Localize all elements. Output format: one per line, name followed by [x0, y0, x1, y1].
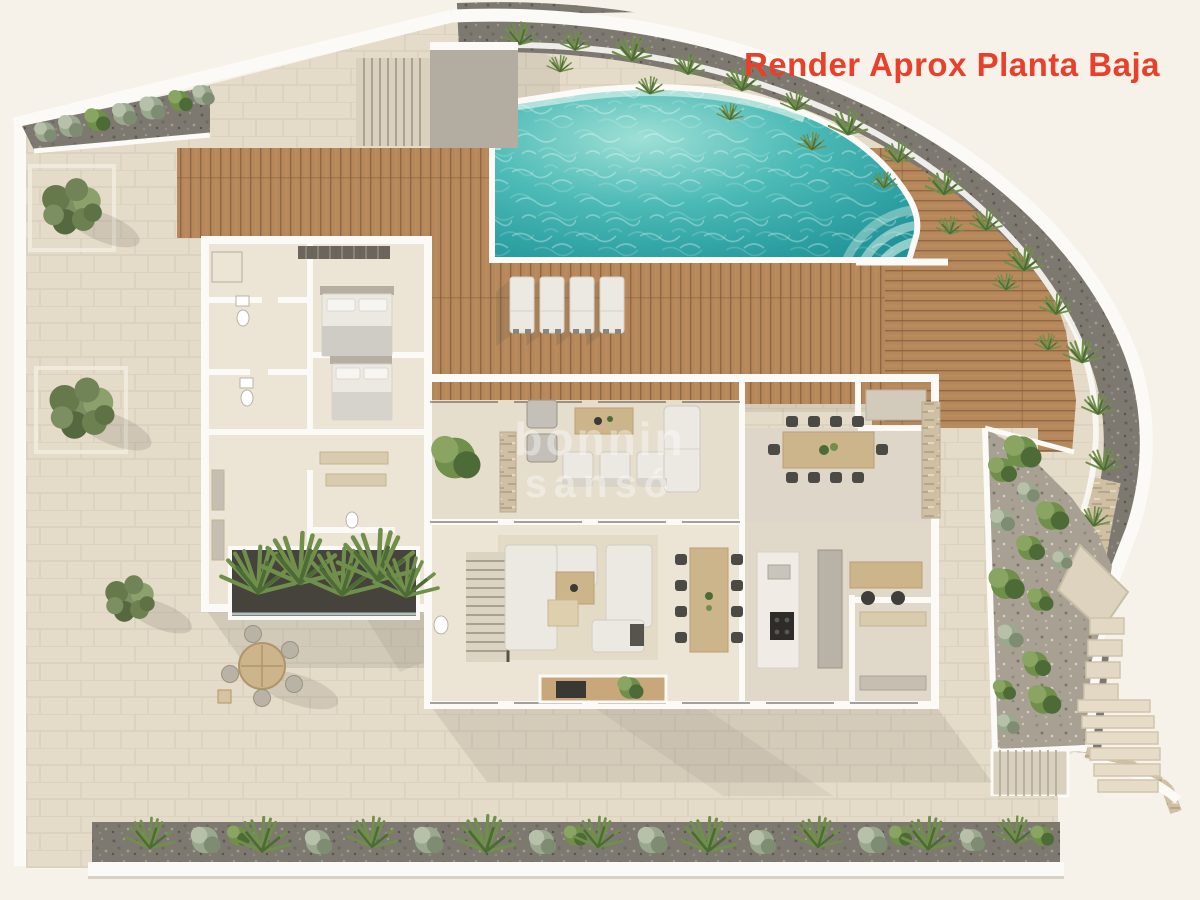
storage-room	[866, 390, 926, 420]
sun-lounger	[570, 277, 594, 334]
stairs	[466, 552, 508, 662]
cooktop	[770, 612, 794, 640]
bed-second	[330, 356, 392, 420]
plan-title: Render Aprox Planta Baja	[744, 46, 1160, 84]
sun-lounger	[600, 277, 624, 334]
fire-lounge	[540, 676, 666, 702]
bottom-wall	[88, 862, 1064, 878]
wc-toilet	[434, 616, 448, 634]
bed-main	[320, 286, 394, 356]
sun-lounger	[540, 277, 564, 334]
garden-stairs	[992, 750, 1068, 796]
floorplan-render: bonnin sansó Render Aprox Planta Baja	[0, 0, 1200, 900]
main-house	[428, 378, 992, 782]
breakfast-bar	[850, 562, 922, 588]
wardrobe-top	[298, 246, 390, 259]
bottom-planting-strip	[88, 796, 1064, 879]
retaining-wall	[430, 42, 518, 148]
stone-column	[500, 432, 516, 512]
living-room	[434, 535, 743, 662]
stone-pillar	[922, 402, 940, 518]
site-plan-drawing	[0, 0, 1200, 900]
sun-lounger	[510, 277, 534, 334]
tall-cabinet	[818, 550, 842, 668]
